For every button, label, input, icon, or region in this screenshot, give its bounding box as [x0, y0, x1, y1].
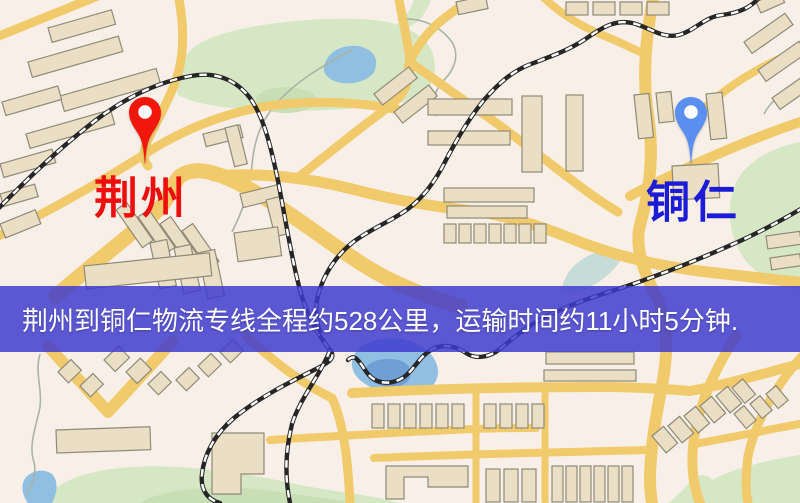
origin-city-label: 荆州 [94, 177, 188, 221]
destination-pin-icon [674, 96, 708, 166]
route-map: 荆州 铜仁 荆州到铜仁物流专线全程约528公里，运输时间约11小时5分钟. [0, 0, 800, 503]
destination-city-label: 铜仁 [646, 181, 740, 225]
route-info-banner: 荆州到铜仁物流专线全程约528公里，运输时间约11小时5分钟. [0, 286, 800, 352]
origin-pin-icon [128, 96, 162, 166]
basemap [0, 0, 800, 503]
route-info-text: 荆州到铜仁物流专线全程约528公里，运输时间约11小时5分钟. [0, 301, 738, 338]
